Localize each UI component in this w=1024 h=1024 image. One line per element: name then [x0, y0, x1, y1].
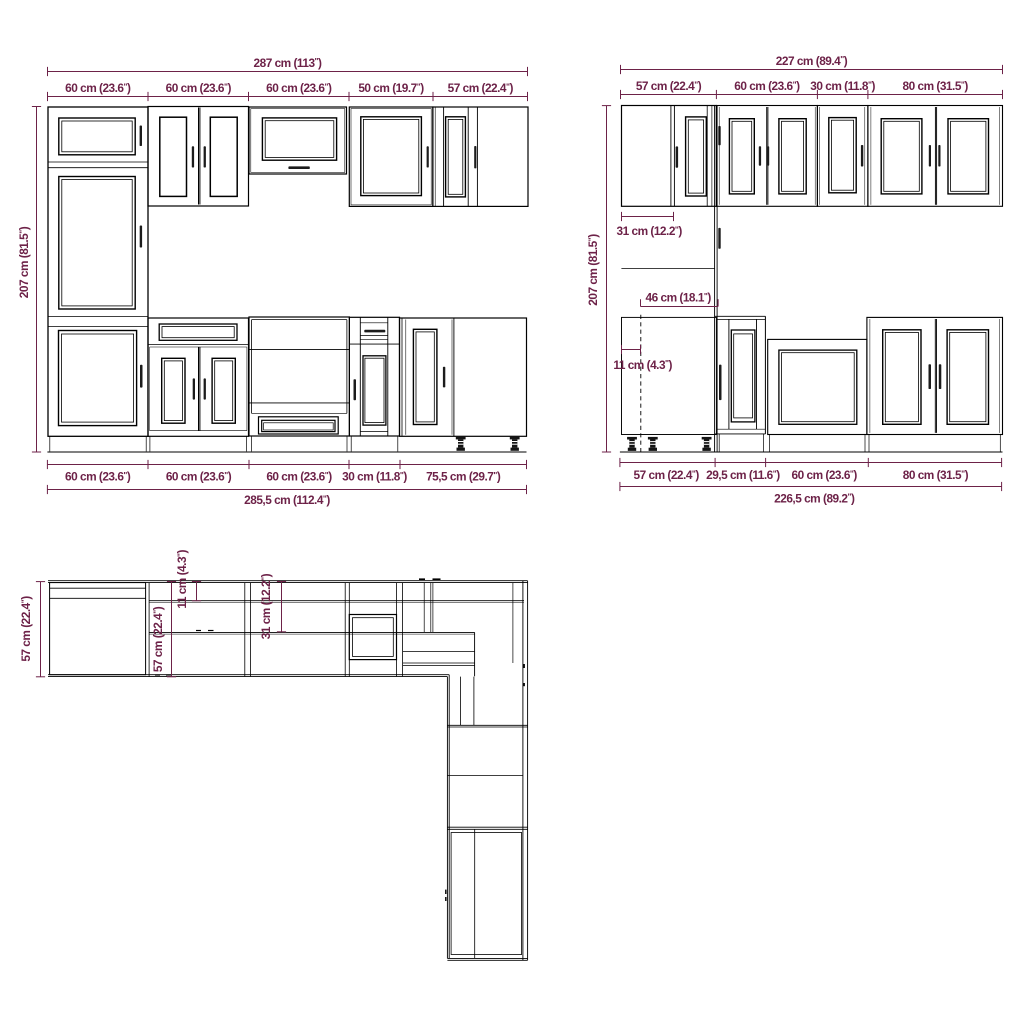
svg-text:60 cm (23.6"​): 60 cm (23.6"​) [65, 469, 131, 483]
svg-text:30 cm (11.8"​): 30 cm (11.8"​) [342, 469, 407, 483]
svg-text:60 cm (23.6"​): 60 cm (23.6"​) [266, 81, 332, 95]
svg-text:57 cm (22.4"​): 57 cm (22.4"​) [19, 596, 33, 662]
svg-text:57 cm (22.4"​): 57 cm (22.4"​) [448, 81, 514, 95]
svg-text:57 cm (22.4"​): 57 cm (22.4"​) [636, 79, 702, 93]
svg-text:46 cm (18.1"​): 46 cm (18.1"​) [646, 291, 712, 305]
svg-text:287 cm (113"​): 287 cm (113"​) [254, 56, 323, 70]
svg-text:29,5 cm (11.6"​): 29,5 cm (11.6"​) [706, 468, 780, 482]
svg-text:226,5 cm (89.2"​): 226,5 cm (89.2"​) [774, 491, 855, 505]
svg-text:11 cm (4.3"​): 11 cm (4.3"​) [175, 549, 189, 608]
svg-text:207 cm (81.5"​): 207 cm (81.5"​) [17, 226, 31, 298]
svg-text:57 cm (22.4"​): 57 cm (22.4"​) [151, 606, 165, 672]
svg-text:60 cm (23.6"​): 60 cm (23.6"​) [166, 469, 232, 483]
svg-text:11 cm (4.3"​): 11 cm (4.3"​) [613, 358, 672, 372]
svg-text:60 cm (23.6"​): 60 cm (23.6"​) [166, 81, 232, 95]
svg-text:80 cm (31.5"​): 80 cm (31.5"​) [903, 79, 969, 93]
svg-text:31 cm (12.2"​): 31 cm (12.2"​) [259, 573, 273, 639]
svg-text:60 cm (23.6"​): 60 cm (23.6"​) [266, 469, 332, 483]
svg-text:80 cm (31.5"​): 80 cm (31.5"​) [903, 468, 969, 482]
svg-text:60 cm (23.6"​): 60 cm (23.6"​) [65, 81, 131, 95]
svg-text:57 cm (22.4"​): 57 cm (22.4"​) [634, 468, 700, 482]
svg-text:285,5 cm (112.4"​): 285,5 cm (112.4"​) [244, 493, 330, 507]
svg-text:30 cm (11.8"​): 30 cm (11.8"​) [810, 79, 875, 93]
svg-text:31 cm (12.2"​): 31 cm (12.2"​) [617, 224, 683, 238]
svg-text:75,5 cm (29.7"​): 75,5 cm (29.7"​) [426, 469, 501, 483]
svg-text:60 cm (23.6"​): 60 cm (23.6"​) [734, 79, 800, 93]
svg-text:60 cm (23.6"​): 60 cm (23.6"​) [792, 468, 858, 482]
svg-text:207 cm (81.5"​): 207 cm (81.5"​) [586, 234, 600, 306]
svg-text:50 cm (19.7"​): 50 cm (19.7"​) [358, 81, 424, 95]
svg-text:227 cm (89.4"​): 227 cm (89.4"​) [776, 54, 848, 68]
